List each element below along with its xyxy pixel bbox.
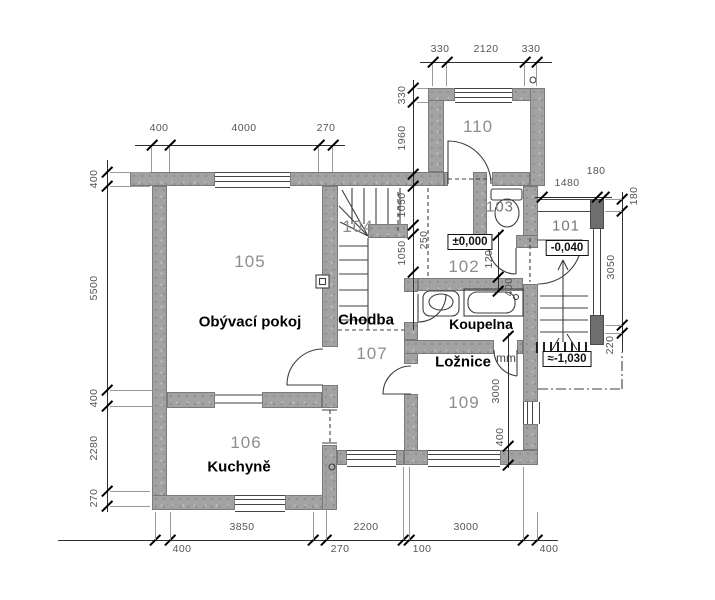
dim-label: 2280	[88, 436, 100, 461]
dim-line	[622, 192, 623, 352]
door-living	[287, 349, 323, 385]
dim-line	[498, 232, 499, 292]
extension-line	[403, 467, 404, 540]
room-name-bedroom: Ložnice	[435, 354, 491, 371]
extension-line	[110, 390, 165, 391]
door-bathroom	[418, 294, 446, 322]
dim-label: 100	[413, 543, 432, 555]
room-number-105: 105	[234, 252, 265, 272]
dim-label: 220	[604, 336, 616, 355]
extension-line	[169, 147, 170, 172]
extension-line	[110, 172, 150, 173]
dim-label: 3050	[605, 255, 617, 280]
extension-line	[110, 506, 150, 507]
dim-label: 400	[494, 428, 506, 447]
dim-line	[107, 160, 108, 512]
dim-label: 330	[522, 43, 541, 55]
room-number-106: 106	[230, 433, 261, 453]
room-number-101: 101	[552, 218, 580, 235]
dim-label: 400	[173, 543, 192, 555]
dim-label: 3850	[230, 521, 255, 533]
extension-line	[432, 64, 433, 86]
room-name-kitchen: Kuchyně	[207, 459, 270, 476]
dim-label: 2120	[474, 43, 499, 55]
level-marker-terrain: ≈-1,030	[543, 351, 592, 367]
dim-label: 400	[150, 122, 169, 134]
staircase-symbol	[339, 188, 400, 330]
dim-label: 250	[418, 231, 430, 250]
dim-line	[413, 80, 414, 330]
dim-label: 270	[331, 543, 350, 555]
extension-line	[524, 64, 525, 86]
extension-line	[409, 467, 410, 540]
flue-symbol	[316, 275, 329, 288]
extension-line	[605, 333, 622, 334]
extension-line	[318, 147, 319, 172]
porch-stair-treads	[540, 296, 588, 332]
extension-line	[537, 512, 538, 540]
level-marker-vestibule: ±0,000	[447, 234, 492, 250]
dim-label: 1050	[396, 241, 408, 266]
level-leader-lines	[552, 334, 577, 350]
room-number-102: 102	[448, 257, 479, 277]
dim-label: 270	[88, 489, 100, 508]
units-annotation: mm	[496, 351, 516, 365]
room-name-bathroom: Koupelna	[449, 316, 513, 332]
room-number-109: 109	[448, 393, 479, 413]
dim-line	[420, 62, 552, 63]
dim-label: 180	[587, 165, 606, 177]
extension-line	[151, 147, 152, 172]
extension-line	[110, 186, 150, 187]
extension-line	[446, 64, 447, 86]
level-marker-porch: -0,040	[546, 240, 589, 256]
dim-label: 1480	[555, 177, 580, 189]
extension-line	[332, 147, 333, 172]
floor-plan: 330 2120 330 400 4000 270 400 5500 400 2…	[0, 0, 715, 600]
dim-label: 400	[540, 543, 559, 555]
extension-line	[313, 512, 314, 540]
room-number-103: 103	[486, 199, 514, 216]
dim-label: 330	[431, 43, 450, 55]
extension-line	[605, 199, 622, 200]
dim-label: 1050	[396, 193, 408, 218]
room-name-living: Obývací pokoj	[199, 314, 302, 331]
extension-line	[605, 325, 622, 326]
dim-label: 3000	[490, 379, 502, 404]
extension-line	[536, 64, 537, 86]
door-bedroom	[383, 366, 411, 394]
room-number-110: 110	[463, 117, 493, 137]
sink	[423, 291, 459, 316]
drain-marker	[329, 464, 335, 470]
room-number-104: 104	[342, 217, 373, 237]
door-room110	[448, 141, 491, 184]
dim-label: 400	[503, 278, 515, 297]
extension-line	[110, 491, 150, 492]
dim-label: 3000	[454, 521, 479, 533]
extension-line	[170, 512, 171, 540]
extension-line	[417, 88, 428, 89]
sink-basin	[429, 294, 453, 310]
extension-line	[605, 211, 622, 212]
extension-line	[523, 467, 524, 540]
dim-label: 4000	[232, 122, 257, 134]
dim-label: 330	[396, 86, 408, 105]
dim-label: 1960	[396, 126, 408, 151]
extension-line	[110, 406, 165, 407]
room-number-107: 107	[356, 344, 387, 364]
dim-label: 400	[88, 170, 100, 189]
extension-line	[326, 467, 327, 540]
dim-label: 180	[628, 187, 640, 206]
dim-label: 400	[88, 389, 100, 408]
dim-label: 2200	[354, 521, 379, 533]
dim-line	[58, 540, 558, 541]
room-name-hallway: Chodba	[338, 312, 394, 329]
stair-direction-arrow	[558, 260, 568, 342]
extension-line	[417, 102, 428, 103]
extension-line	[155, 512, 156, 540]
dim-label: 270	[317, 122, 336, 134]
dim-label: 5500	[88, 276, 100, 301]
